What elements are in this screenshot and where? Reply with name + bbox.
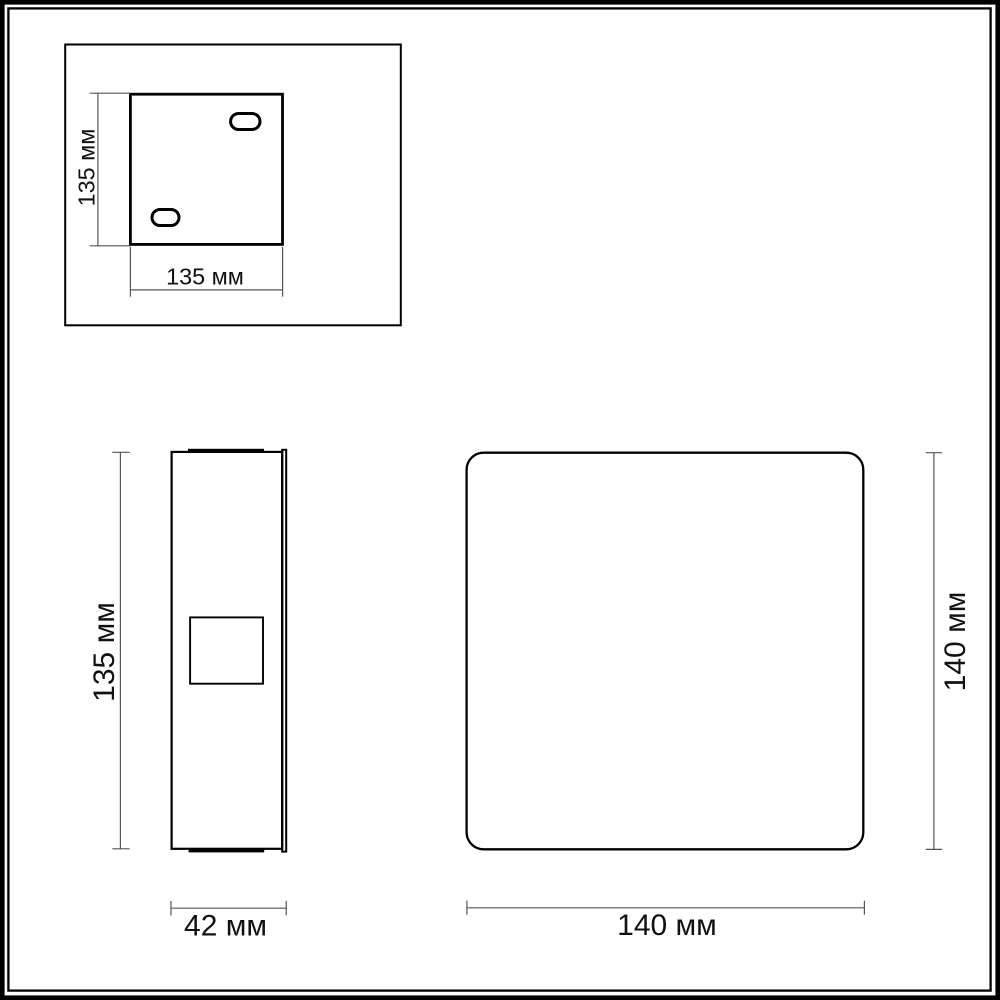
svg-text:135 мм: 135 мм bbox=[166, 264, 244, 290]
svg-text:135 мм: 135 мм bbox=[73, 129, 99, 207]
svg-text:42 мм: 42 мм bbox=[184, 910, 267, 943]
svg-text:135 мм: 135 мм bbox=[88, 602, 121, 702]
svg-text:140 мм: 140 мм bbox=[617, 909, 717, 942]
svg-text:140 мм: 140 мм bbox=[939, 592, 972, 692]
